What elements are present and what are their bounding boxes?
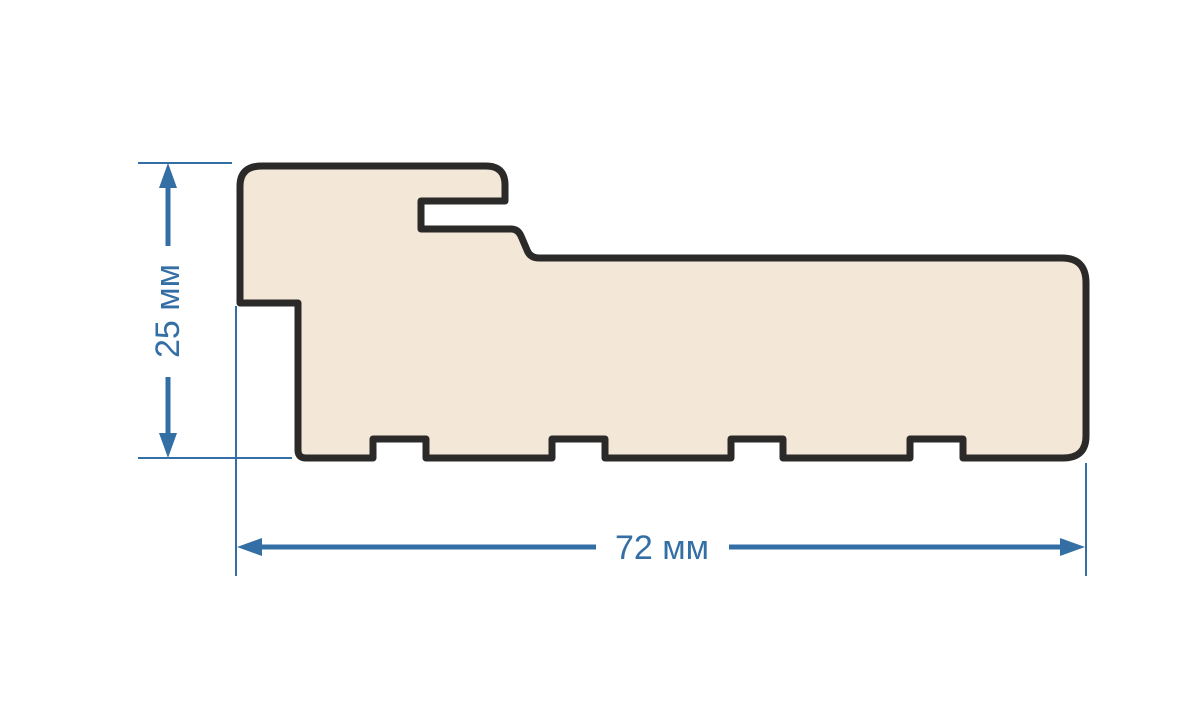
arrow-up-icon	[159, 163, 177, 188]
profile-shape-group	[240, 166, 1086, 458]
height-dimension-label: 25 мм	[149, 264, 187, 358]
arrow-right-icon	[1060, 538, 1085, 556]
arrow-down-icon	[159, 433, 177, 458]
profile-shape	[240, 166, 1086, 458]
profile-drawing: 25 мм 72 мм	[0, 0, 1184, 712]
arrow-left-icon	[237, 538, 262, 556]
diagram-canvas: 25 мм 72 мм	[0, 0, 1184, 712]
width-dimension-label: 72 мм	[615, 529, 709, 567]
